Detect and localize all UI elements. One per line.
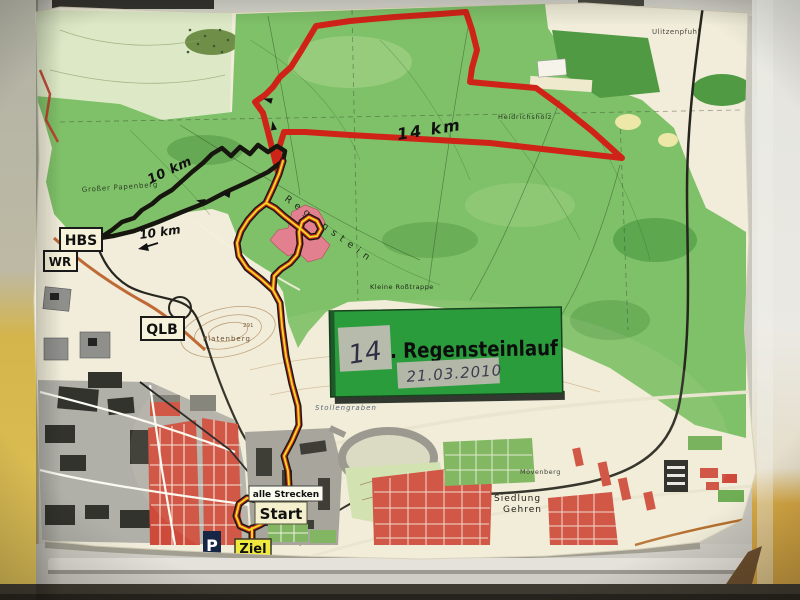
photo-lighting [0, 0, 800, 600]
photo-of-race-map: Großer Papenberg Regenstein Kleine Roßtr… [0, 0, 800, 600]
